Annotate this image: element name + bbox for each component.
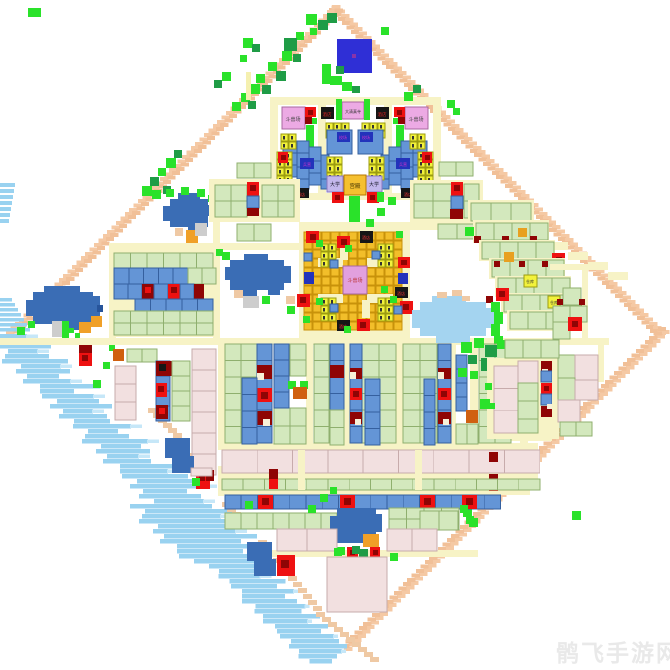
svg-text:鹘飞手游网: 鹘飞手游网: [556, 640, 670, 666]
svg-text:仓库: 仓库: [550, 299, 558, 305]
svg-text:校场: 校场: [362, 134, 370, 140]
svg-text:兵营: 兵营: [303, 161, 311, 167]
svg-text:校场: 校场: [339, 134, 347, 140]
svg-text:兵营: 兵营: [399, 161, 407, 167]
svg-text:大学: 大学: [330, 181, 340, 188]
svg-text:仓库: 仓库: [526, 278, 534, 284]
svg-text:斗兽场: 斗兽场: [347, 277, 362, 284]
svg-text:酒店: 酒店: [397, 290, 405, 296]
svg-text:宫殿: 宫殿: [349, 182, 361, 190]
svg-text:酒店: 酒店: [323, 111, 332, 118]
svg-text:酒店: 酒店: [362, 234, 370, 240]
svg-text:大学: 大学: [369, 181, 379, 188]
svg-text:大清真寺: 大清真寺: [345, 108, 361, 114]
svg-text:斗兽场: 斗兽场: [408, 116, 423, 123]
svg-text:斗兽场: 斗兽场: [285, 116, 300, 123]
svg-text:酒店: 酒店: [378, 111, 387, 118]
